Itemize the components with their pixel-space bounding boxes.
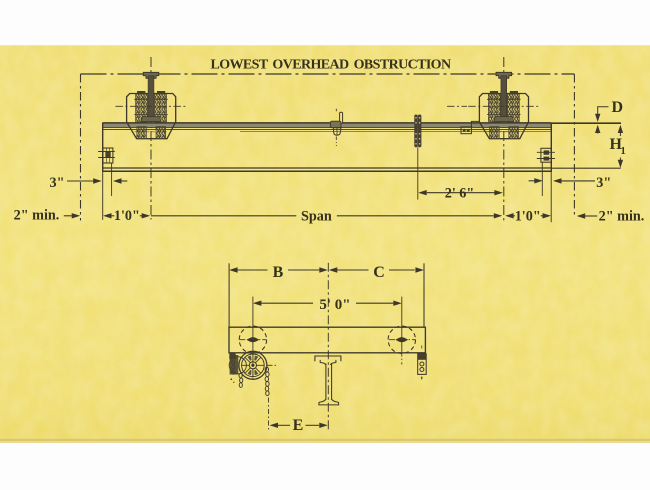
svg-text:1'0": 1'0" xyxy=(515,209,541,225)
svg-text:Span: Span xyxy=(301,208,332,224)
svg-text:LOWEST OVERHEAD OBSTRUCTION: LOWEST OVERHEAD OBSTRUCTION xyxy=(210,57,450,72)
svg-text:2" min.: 2" min. xyxy=(14,207,60,223)
svg-text:1'0": 1'0" xyxy=(114,208,140,224)
svg-text:5' 0": 5' 0" xyxy=(319,297,350,313)
svg-text:D: D xyxy=(612,99,624,116)
svg-text:E: E xyxy=(293,417,304,434)
svg-text:C: C xyxy=(373,264,385,281)
svg-text:1: 1 xyxy=(621,146,626,157)
svg-text:2' 6": 2' 6" xyxy=(445,186,475,202)
svg-text:3": 3" xyxy=(50,175,65,191)
svg-text:2" min.: 2" min. xyxy=(599,209,645,225)
svg-text:3": 3" xyxy=(596,175,611,191)
svg-text:B: B xyxy=(273,264,284,281)
